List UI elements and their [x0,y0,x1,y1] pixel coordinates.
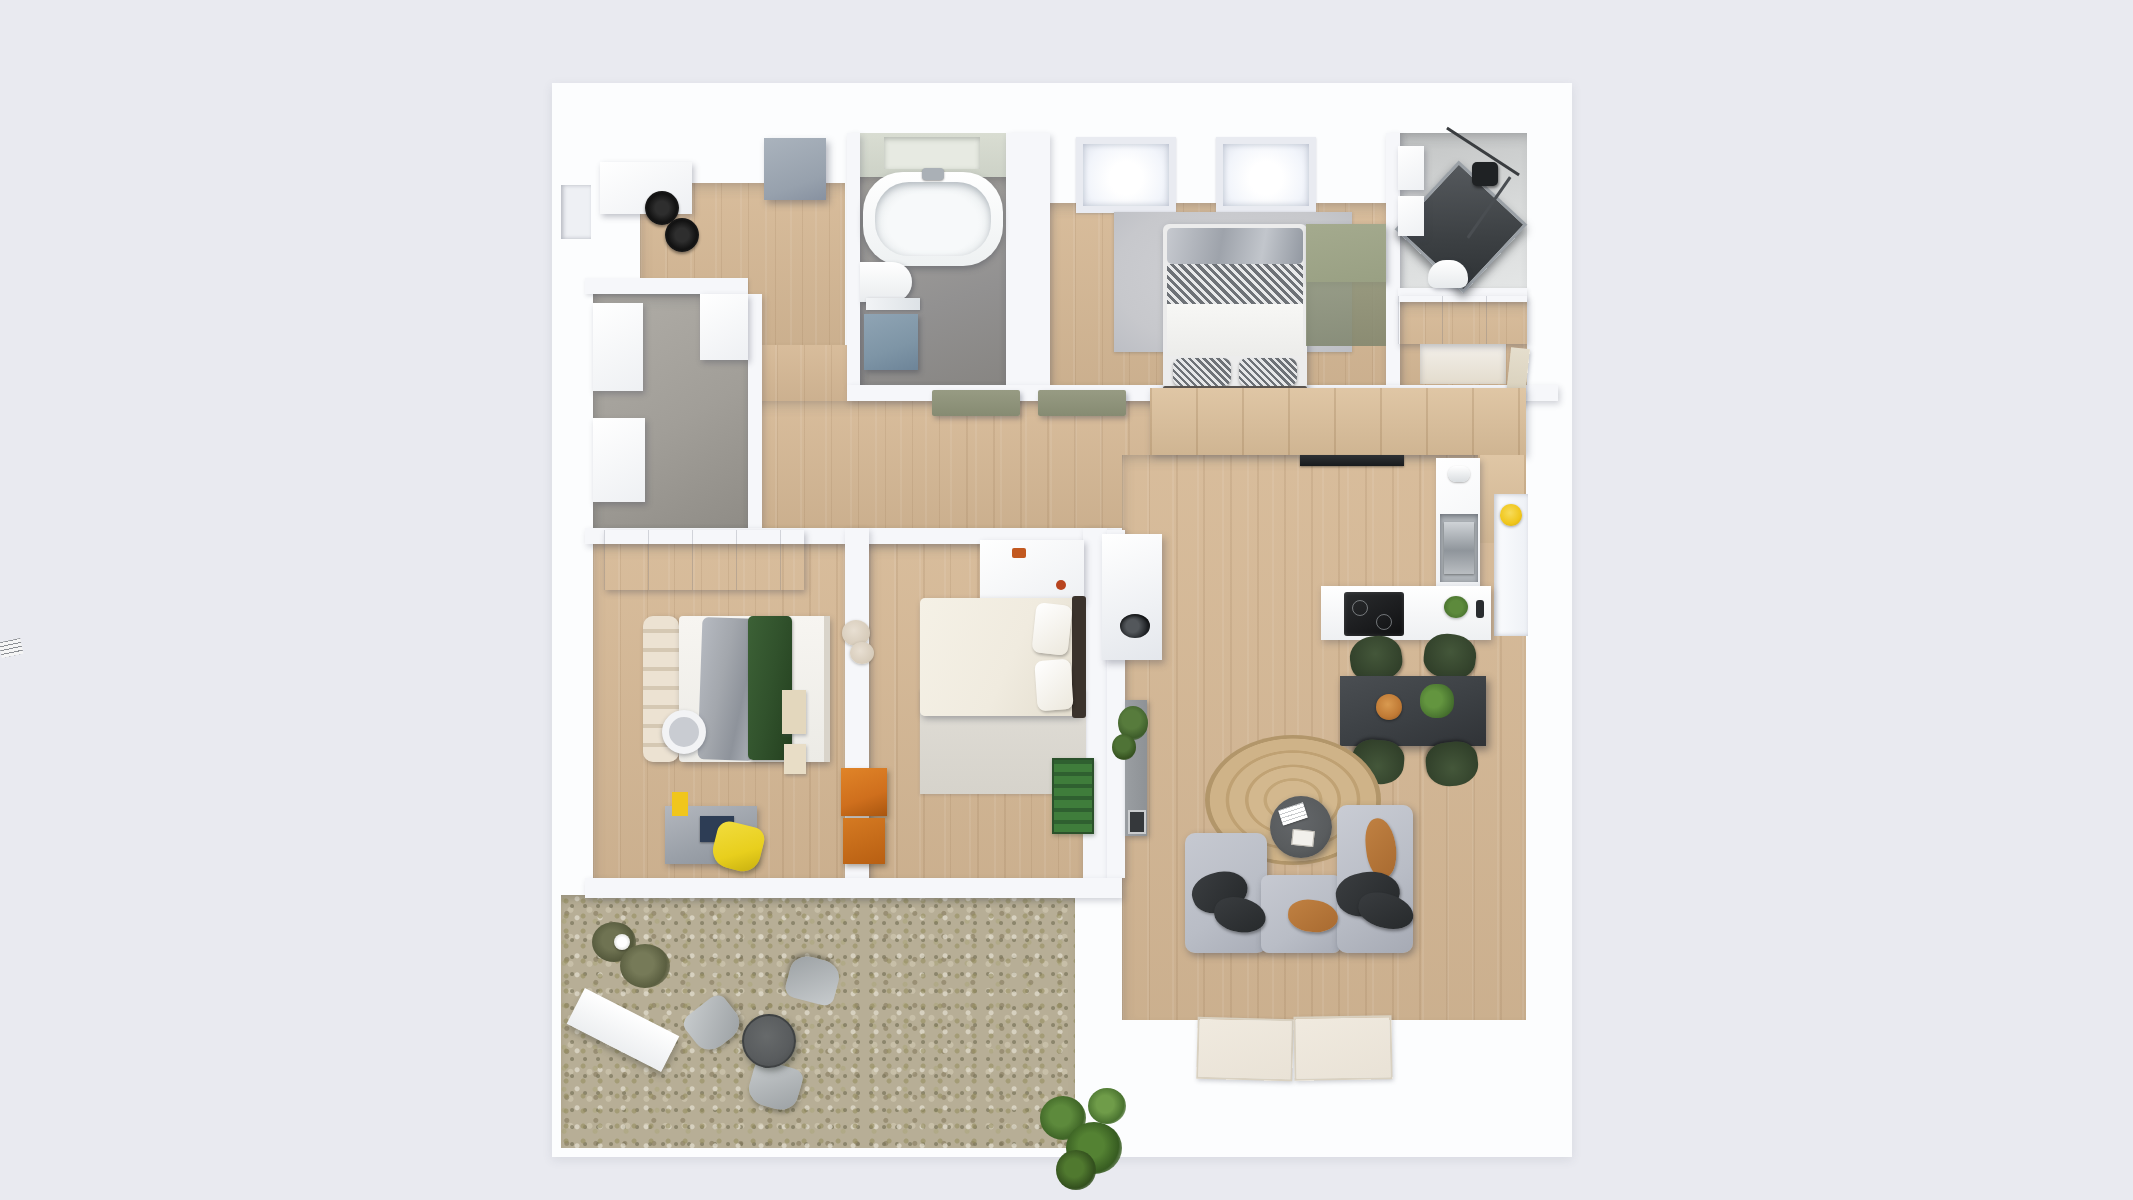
doormat [1196,1017,1294,1081]
patio-shrub [620,944,670,988]
skylight-icon [1076,137,1176,213]
storage-column [700,294,748,360]
serving-bowl [1376,694,1402,720]
bedroom2-pillow [1034,659,1073,711]
cooktop [1344,592,1404,636]
desk-lamp-icon [662,710,706,754]
bed-pattern-band [1167,264,1303,304]
sideboard-plant [1112,734,1136,760]
bedroom2-shelf-blocks [782,690,806,734]
table-plant [1420,684,1454,718]
extractor-vent-icon [1300,455,1404,466]
patio-corner-plant [1056,1150,1096,1190]
bedroom2-wall-desk [980,540,1084,602]
bathtub-faucet-icon [922,168,944,180]
entry-corridor-floor [750,345,847,405]
desk-item-icon [1012,548,1026,558]
console-basin-bowl [1120,614,1150,638]
wardrobe-corridor [1420,344,1506,384]
counter-plant [1444,596,1468,618]
dining-table [1340,676,1486,746]
bed-pillow [1239,358,1297,386]
magazine-icon [1291,829,1315,847]
patio-pot-icon [614,934,630,950]
bed-duvet [1167,304,1303,356]
yellow-wall-deco [1500,504,1522,526]
shower-toilet [1428,260,1468,288]
storage-wall-cabinet-upper [593,303,643,391]
bedroom2-bed-frame [1072,596,1086,718]
counter-faucet-icon [1476,600,1484,618]
wall-closet-block [1006,133,1050,385]
wall-entry-storage [585,278,748,294]
kids-bed-footboard [824,616,830,762]
coffee-machine-icon [1444,522,1474,574]
toy-box [841,768,887,816]
cooktop-burner-icon [1352,600,1368,616]
shower-washbasin [1398,146,1424,190]
vanity-cabinet [864,314,918,370]
toy-box [843,818,885,864]
storage-wall-cabinet-lower [593,418,645,502]
front-door-recess [561,185,591,239]
bistro-table [742,1014,796,1068]
hall-door-panel [1038,390,1126,416]
hallway-floor [750,401,1162,528]
floorplan-scene [0,0,2133,1200]
entry-tall-locker [764,138,826,200]
bathtub-basin [875,182,991,256]
master-wall-desk [1306,224,1386,282]
wall-storage-right [748,294,762,528]
toilet [860,262,912,302]
desk-item-icon [1056,580,1066,590]
hall-door-panel [932,390,1020,416]
cooktop-burner-icon [1376,614,1392,630]
doormat [1293,1015,1392,1081]
paper-towel-roll [1448,466,1470,482]
vanity-mirror [866,298,920,310]
bed-pillow [1173,358,1231,386]
shower-cabinet [1398,196,1424,236]
wardrobe-closet-band [1398,296,1527,344]
green-play-mat [1052,758,1094,834]
skylight-icon [1216,137,1316,213]
hat-icon [665,218,699,252]
bathroom-niche [884,137,980,169]
wall-entry-bath [847,133,860,385]
bedroom2-pillow [1031,602,1072,655]
wall-bedrooms-bottom [585,878,1122,898]
kitchen-tall-cabinets [1150,388,1526,455]
kids-wardrobe [604,530,804,590]
teddy-bear-icon [850,642,874,664]
bed-silver-throw [1167,228,1303,264]
patio-corner-plant [1088,1088,1126,1124]
kids-bed-green-throw [748,616,792,760]
bedroom2-shelf-blocks [784,744,806,774]
shower-head-icon [1472,162,1498,186]
picture-frame-icon [1128,810,1146,834]
magazine-icon [0,638,23,658]
master-wall-desk-side [1306,282,1386,346]
basin-console [1102,534,1162,660]
desk-clutter-icon [672,792,688,816]
master-bed [1163,224,1307,392]
